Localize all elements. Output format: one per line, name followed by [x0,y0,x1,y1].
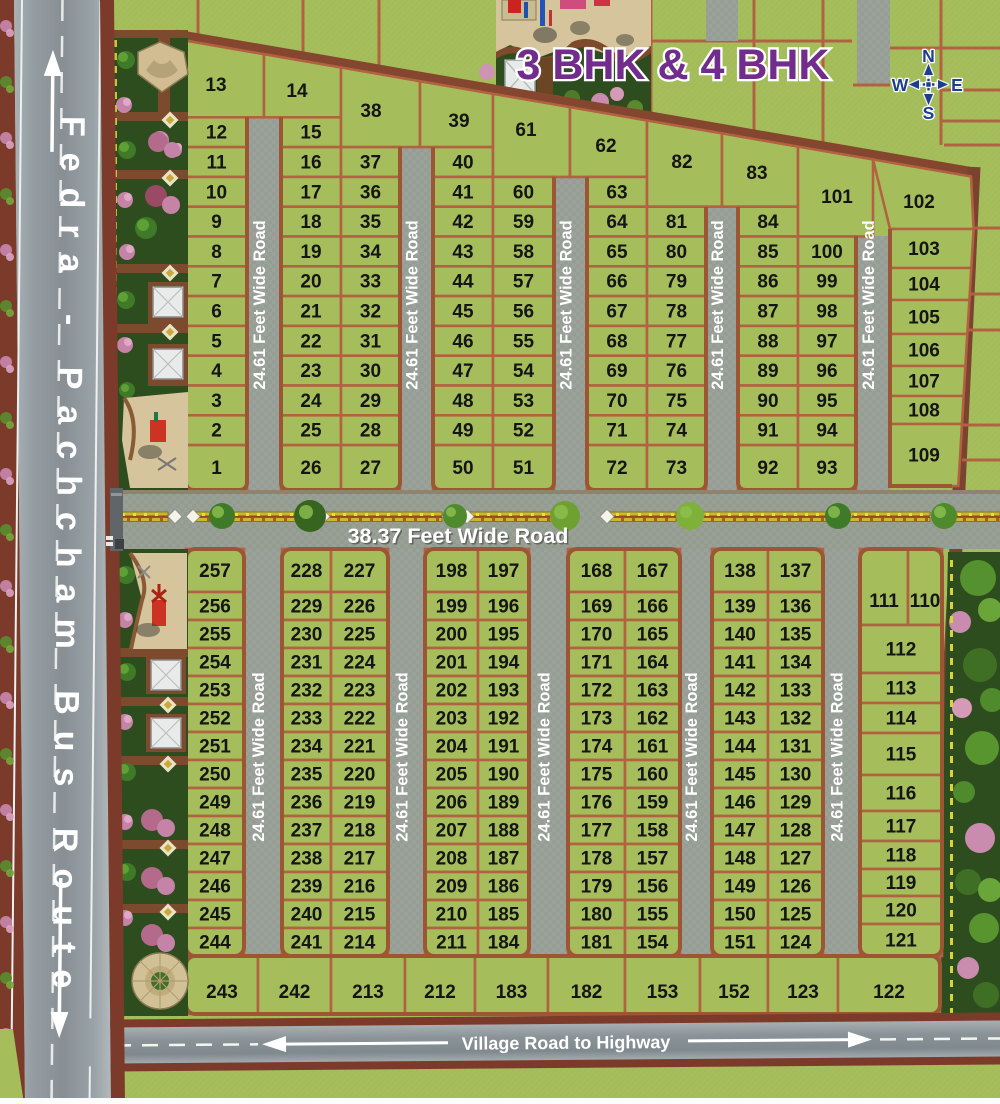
svg-text:63: 63 [606,182,627,203]
svg-text:62: 62 [595,136,616,157]
svg-text:95: 95 [816,391,838,412]
svg-text:201: 201 [436,653,468,674]
svg-text:135: 135 [780,625,812,646]
svg-text:S: S [923,103,935,123]
svg-text:223: 223 [344,681,376,702]
svg-text:227: 227 [344,561,376,582]
svg-text:74: 74 [666,421,688,442]
svg-text:238: 238 [291,849,323,870]
svg-text:24.61 Feet Wide Road: 24.61 Feet Wide Road [536,672,554,842]
svg-text:195: 195 [488,625,520,646]
svg-text:88: 88 [757,331,778,352]
svg-text:178: 178 [581,849,613,870]
svg-text:91: 91 [757,421,779,442]
svg-text:257: 257 [199,561,231,582]
svg-text:58: 58 [513,242,534,263]
svg-text:7: 7 [211,272,222,293]
svg-text:93: 93 [816,458,837,479]
svg-text:198: 198 [436,561,468,582]
svg-text:72: 72 [606,458,627,479]
svg-text:144: 144 [724,737,756,758]
svg-text:125: 125 [780,905,812,926]
svg-text:186: 186 [488,877,520,898]
svg-text:28: 28 [360,421,381,442]
svg-text:35: 35 [360,212,382,233]
svg-text:246: 246 [199,877,231,898]
svg-text:47: 47 [452,361,473,382]
svg-text:239: 239 [291,877,323,898]
svg-text:45: 45 [452,302,474,323]
svg-text:52: 52 [513,421,534,442]
svg-text:184: 184 [488,933,520,954]
svg-text:27: 27 [360,458,381,479]
svg-text:170: 170 [581,625,613,646]
svg-text:76: 76 [666,361,687,382]
svg-text:237: 237 [291,821,323,842]
svg-text:9: 9 [211,212,222,233]
svg-text:211: 211 [436,933,467,954]
svg-text:217: 217 [344,849,376,870]
svg-text:241: 241 [291,933,323,954]
svg-text:69: 69 [606,361,627,382]
svg-text:104: 104 [908,275,940,296]
svg-text:136: 136 [780,597,812,618]
svg-text:61: 61 [515,120,537,141]
svg-text:84: 84 [757,212,779,233]
svg-text:143: 143 [724,709,756,730]
svg-text:244: 244 [199,933,231,954]
svg-text:38.37 Feet Wide Road: 38.37 Feet Wide Road [348,524,569,548]
svg-text:6: 6 [211,302,222,323]
svg-text:188: 188 [488,821,520,842]
svg-text:221: 221 [344,737,376,758]
svg-text:160: 160 [637,765,669,786]
svg-text:252: 252 [199,709,231,730]
svg-text:123: 123 [787,982,819,1003]
svg-text:92: 92 [757,458,778,479]
svg-text:46: 46 [452,331,473,352]
svg-text:138: 138 [724,561,756,582]
svg-text:21: 21 [300,302,322,323]
svg-text:53: 53 [513,391,534,412]
svg-text:24.61 Feet Wide Road: 24.61 Feet Wide Road [250,672,268,842]
svg-text:233: 233 [291,709,323,730]
svg-text:133: 133 [780,681,812,702]
svg-text:26: 26 [300,458,321,479]
svg-text:23: 23 [300,361,321,382]
svg-text:189: 189 [488,793,520,814]
svg-text:W: W [892,75,909,95]
svg-text:159: 159 [637,793,669,814]
svg-text:139: 139 [724,597,756,618]
svg-text:112: 112 [886,640,917,661]
svg-text:116: 116 [886,784,917,805]
svg-text:24.61 Feet Wide Road: 24.61 Feet Wide Road [558,220,576,390]
svg-text:128: 128 [780,821,812,842]
svg-text:118: 118 [886,846,917,867]
svg-text:121: 121 [885,931,917,952]
svg-text:154: 154 [637,933,669,954]
svg-text:122: 122 [873,982,905,1003]
svg-text:E: E [951,75,963,95]
svg-text:68: 68 [606,331,627,352]
svg-text:85: 85 [757,242,779,263]
svg-text:36: 36 [360,182,381,203]
svg-text:142: 142 [724,681,756,702]
svg-text:3: 3 [211,391,222,412]
svg-text:78: 78 [666,302,687,323]
svg-text:108: 108 [908,401,940,422]
svg-text:77: 77 [666,331,687,352]
svg-text:153: 153 [647,982,679,1003]
svg-text:111: 111 [869,591,899,612]
svg-text:236: 236 [291,793,323,814]
svg-text:204: 204 [436,737,468,758]
svg-text:94: 94 [816,421,838,442]
svg-text:24.61 Feet Wide Road: 24.61 Feet Wide Road [394,672,412,842]
svg-text:145: 145 [724,765,756,786]
svg-text:179: 179 [581,877,613,898]
svg-text:197: 197 [488,561,520,582]
svg-text:216: 216 [344,877,376,898]
svg-text:20: 20 [300,272,321,293]
svg-text:245: 245 [199,905,231,926]
svg-text:N: N [922,46,935,66]
svg-text:203: 203 [436,709,468,730]
svg-text:87: 87 [757,302,778,323]
svg-text:55: 55 [513,331,535,352]
svg-text:248: 248 [199,821,231,842]
svg-text:50: 50 [452,458,473,479]
svg-text:163: 163 [637,681,669,702]
svg-text:218: 218 [344,821,376,842]
svg-text:110: 110 [910,591,941,612]
svg-text:38: 38 [360,101,381,122]
svg-text:243: 243 [206,982,238,1003]
svg-text:10: 10 [206,182,227,203]
svg-text:83: 83 [746,163,767,184]
svg-text:165: 165 [637,625,669,646]
svg-text:24.61 Feet Wide Road: 24.61 Feet Wide Road [683,672,701,842]
svg-text:141: 141 [724,653,756,674]
svg-text:175: 175 [581,765,613,786]
svg-text:89: 89 [757,361,778,382]
svg-text:152: 152 [718,982,750,1003]
svg-text:156: 156 [637,877,669,898]
svg-text:67: 67 [606,302,627,323]
svg-text:187: 187 [488,849,520,870]
svg-text:220: 220 [344,765,376,786]
svg-text:146: 146 [724,793,756,814]
svg-text:60: 60 [513,182,534,203]
svg-text:99: 99 [816,272,837,293]
svg-text:202: 202 [436,681,468,702]
svg-text:129: 129 [780,793,812,814]
svg-text:12: 12 [206,123,227,144]
svg-text:80: 80 [666,242,687,263]
svg-text:226: 226 [344,597,376,618]
svg-text:255: 255 [199,625,231,646]
svg-text:208: 208 [436,849,468,870]
svg-text:24.61 Feet Wide Road: 24.61 Feet Wide Road [860,220,878,390]
svg-text:235: 235 [291,765,323,786]
svg-text:231: 231 [291,653,323,674]
svg-text:8: 8 [211,242,222,263]
svg-text:30: 30 [360,361,381,382]
svg-text:206: 206 [436,793,468,814]
svg-text:207: 207 [436,821,468,842]
svg-text:54: 54 [513,361,535,382]
svg-text:169: 169 [581,597,613,618]
svg-text:42: 42 [452,212,473,233]
svg-text:22: 22 [300,331,321,352]
svg-text:24.61 Feet Wide Road: 24.61 Feet Wide Road [404,220,422,390]
svg-text:249: 249 [199,793,231,814]
svg-text:131: 131 [780,737,812,758]
svg-text:234: 234 [291,737,323,758]
svg-text:192: 192 [488,709,520,730]
svg-text:190: 190 [488,765,520,786]
svg-text:176: 176 [581,793,613,814]
svg-text:171: 171 [581,653,613,674]
svg-text:214: 214 [344,933,376,954]
svg-text:181: 181 [581,933,613,954]
svg-text:250: 250 [199,765,231,786]
svg-text:172: 172 [581,681,613,702]
svg-text:109: 109 [908,446,940,467]
svg-text:33: 33 [360,272,381,293]
svg-text:66: 66 [606,272,627,293]
svg-text:137: 137 [780,561,812,582]
svg-text:24.61 Feet Wide Road: 24.61 Feet Wide Road [829,672,847,842]
svg-text:5: 5 [211,331,222,352]
svg-text:106: 106 [908,341,940,362]
svg-text:219: 219 [344,793,376,814]
svg-text:132: 132 [780,709,812,730]
svg-text:210: 210 [436,905,468,926]
svg-text:98: 98 [816,302,837,323]
svg-text:14: 14 [286,81,308,102]
svg-text:162: 162 [637,709,669,730]
svg-text:224: 224 [344,653,376,674]
svg-text:230: 230 [291,625,323,646]
svg-text:199: 199 [436,597,468,618]
svg-text:102: 102 [903,192,935,213]
svg-text:32: 32 [360,302,381,323]
svg-text:124: 124 [780,933,812,954]
svg-text:13: 13 [205,75,226,96]
svg-text:222: 222 [344,709,376,730]
svg-text:140: 140 [724,625,756,646]
svg-text:228: 228 [291,561,323,582]
svg-text:65: 65 [606,242,628,263]
svg-text:2: 2 [211,421,222,442]
svg-text:3 BHK & 4 BHK: 3 BHK & 4 BHK [517,41,830,89]
svg-text:209: 209 [436,877,468,898]
svg-text:212: 212 [424,982,456,1003]
svg-text:161: 161 [637,737,669,758]
svg-text:167: 167 [637,561,669,582]
svg-text:51: 51 [513,458,535,479]
svg-text:205: 205 [436,765,468,786]
svg-text:56: 56 [513,302,534,323]
svg-text:75: 75 [666,391,688,412]
svg-text:24: 24 [300,391,322,412]
svg-text:44: 44 [452,272,474,293]
svg-text:39: 39 [448,111,469,132]
svg-text:Village Road to Highway: Village Road to Highway [462,1032,671,1054]
svg-text:34: 34 [360,242,382,263]
svg-text:15: 15 [300,123,322,144]
svg-text:225: 225 [344,625,376,646]
svg-text:1: 1 [211,458,222,479]
svg-text:240: 240 [291,905,323,926]
svg-text:18: 18 [300,212,321,233]
svg-text:90: 90 [757,391,778,412]
svg-text:107: 107 [908,372,940,393]
svg-text:117: 117 [886,817,917,838]
svg-text:168: 168 [581,561,613,582]
svg-text:182: 182 [571,982,603,1003]
svg-text:119: 119 [886,873,917,894]
svg-text:134: 134 [780,653,812,674]
svg-text:157: 157 [637,849,669,870]
svg-text:254: 254 [199,653,231,674]
svg-text:177: 177 [581,821,613,842]
svg-text:151: 151 [724,933,756,954]
svg-text:232: 232 [291,681,323,702]
svg-text:200: 200 [436,625,468,646]
svg-text:215: 215 [344,905,376,926]
svg-text:114: 114 [886,709,917,730]
svg-text:24.61 Feet Wide Road: 24.61 Feet Wide Road [709,220,727,390]
svg-text:194: 194 [488,653,520,674]
svg-text:174: 174 [581,737,613,758]
svg-text:71: 71 [606,421,628,442]
svg-text:251: 251 [199,737,231,758]
svg-text:49: 49 [452,421,473,442]
svg-text:17: 17 [300,182,321,203]
svg-text:256: 256 [199,597,231,618]
svg-text:149: 149 [724,877,756,898]
svg-text:79: 79 [666,272,687,293]
svg-text:150: 150 [724,905,756,926]
svg-text:25: 25 [300,421,322,442]
svg-text:29: 29 [360,391,381,412]
svg-text:103: 103 [908,239,940,260]
svg-text:193: 193 [488,681,520,702]
svg-text:196: 196 [488,597,520,618]
svg-text:64: 64 [606,212,628,233]
svg-text:41: 41 [452,182,474,203]
svg-text:97: 97 [816,331,837,352]
svg-text:100: 100 [811,242,843,263]
svg-text:126: 126 [780,877,812,898]
svg-text:173: 173 [581,709,613,730]
svg-text:48: 48 [452,391,473,412]
svg-text:31: 31 [360,331,382,352]
svg-text:213: 213 [352,982,384,1003]
svg-text:120: 120 [885,901,917,922]
svg-text:86: 86 [757,272,778,293]
svg-text:185: 185 [488,905,520,926]
svg-text:24.61 Feet Wide Road: 24.61 Feet Wide Road [251,220,269,390]
svg-text:113: 113 [886,679,917,700]
svg-text:19: 19 [300,242,321,263]
svg-text:148: 148 [724,849,756,870]
svg-text:82: 82 [671,152,692,173]
svg-text:166: 166 [637,597,669,618]
svg-text:115: 115 [886,745,917,766]
svg-text:43: 43 [452,242,473,263]
svg-text:4: 4 [211,361,222,382]
svg-text:40: 40 [452,153,473,174]
svg-text:96: 96 [816,361,837,382]
svg-text:16: 16 [300,153,321,174]
svg-text:180: 180 [581,905,613,926]
svg-text:105: 105 [908,308,940,329]
svg-text:229: 229 [291,597,323,618]
svg-text:147: 147 [724,821,756,842]
svg-text:73: 73 [666,458,687,479]
svg-text:158: 158 [637,821,669,842]
svg-text:81: 81 [666,212,688,233]
svg-text:57: 57 [513,272,534,293]
svg-text:242: 242 [279,982,311,1003]
svg-text:101: 101 [821,187,853,208]
svg-text:183: 183 [496,982,528,1003]
svg-text:70: 70 [606,391,627,412]
svg-text:247: 247 [199,849,231,870]
svg-text:164: 164 [637,653,669,674]
svg-text:130: 130 [780,765,812,786]
svg-text:59: 59 [513,212,534,233]
svg-text:253: 253 [199,681,231,702]
svg-text:191: 191 [488,737,520,758]
svg-text:155: 155 [637,905,669,926]
svg-text:37: 37 [360,153,381,174]
svg-text:11: 11 [206,153,227,174]
svg-text:127: 127 [780,849,812,870]
